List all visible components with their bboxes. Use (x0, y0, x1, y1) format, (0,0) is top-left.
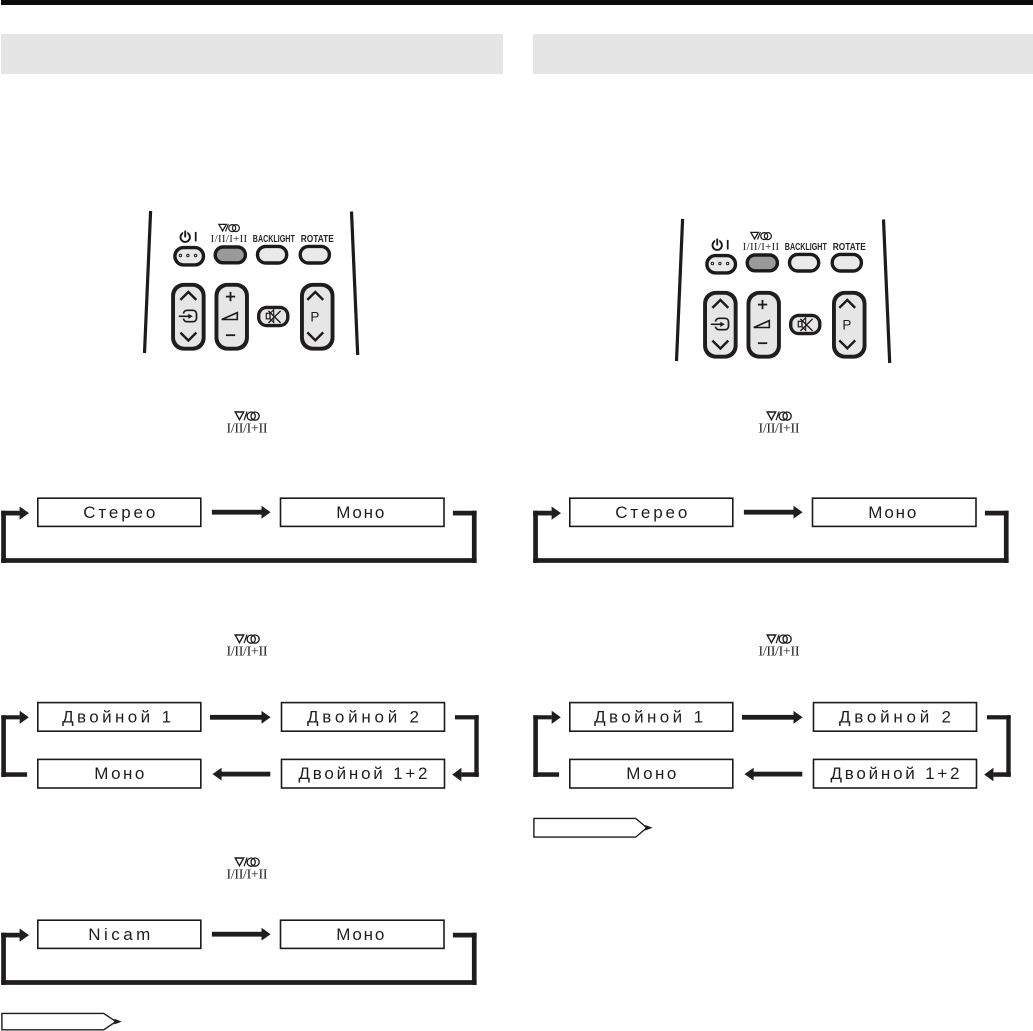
svg-text:Моно: Моно (336, 503, 384, 522)
svg-text:ROTATE: ROTATE (301, 233, 334, 245)
svg-text:I/II/I+II: I/II/I+II (226, 644, 267, 659)
svg-text:BACKLIGHT: BACKLIGHT (253, 233, 295, 245)
svg-text:Моно: Моно (336, 925, 384, 944)
svg-text:Nicam: Nicam (88, 925, 150, 944)
svg-text:Двойной 2: Двойной 2 (307, 707, 419, 726)
svg-text:Двойной 1+2: Двойной 1+2 (831, 764, 960, 783)
svg-text:Двойной 1: Двойной 1 (62, 707, 171, 726)
svg-text:Двойной 1: Двойной 1 (594, 707, 703, 726)
svg-text:Моно: Моно (868, 503, 916, 522)
svg-text:I/II/I+II: I/II/I+II (211, 233, 248, 245)
svg-text:Моно: Моно (94, 764, 144, 783)
svg-text:Двойной 2: Двойной 2 (839, 707, 951, 726)
svg-text:P: P (310, 309, 319, 324)
svg-text:Двойной 1+2: Двойной 1+2 (299, 764, 428, 783)
svg-text:Моно: Моно (626, 764, 676, 783)
svg-text:I/II/I+II: I/II/I+II (226, 867, 267, 882)
svg-text:I/II/I+II: I/II/I+II (226, 421, 267, 436)
